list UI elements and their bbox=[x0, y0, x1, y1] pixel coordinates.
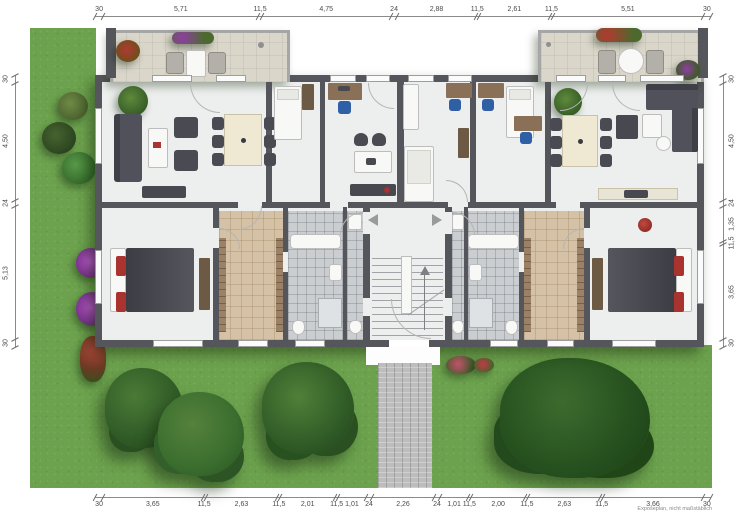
bush-dark bbox=[42, 122, 76, 154]
bed-master-left-pillow-2 bbox=[116, 292, 126, 312]
dim-label-bottom: 1,01 bbox=[447, 501, 461, 508]
wall-mid-horizontal bbox=[102, 202, 697, 208]
dining-chair-r4 bbox=[600, 118, 612, 131]
dim-label-right: 1,35 bbox=[729, 217, 736, 231]
dining-chair-l1 bbox=[212, 117, 224, 130]
sofa-corner-right-top bbox=[646, 84, 698, 110]
window-top-9 bbox=[640, 75, 684, 82]
sofa-left bbox=[114, 114, 142, 182]
dim-label-bottom: 11,5 bbox=[463, 501, 476, 508]
side-table-right bbox=[642, 114, 662, 138]
dining-chair-r5 bbox=[600, 136, 612, 149]
toilet-wc-left bbox=[349, 320, 362, 334]
bed-master-right-pillow-2 bbox=[674, 292, 684, 312]
dim-label-right: 30 bbox=[729, 75, 736, 83]
desk-chair-center bbox=[449, 99, 461, 111]
floor-lamp-right bbox=[656, 136, 671, 151]
dim-label-top: 11,5 bbox=[471, 6, 484, 13]
door-gap-wc-right bbox=[445, 298, 452, 316]
plant-living-left bbox=[118, 86, 148, 116]
dim-label-left: 5,13 bbox=[3, 266, 10, 280]
sink-left bbox=[329, 264, 342, 281]
decor-red-left bbox=[153, 142, 161, 148]
window-bottom-6 bbox=[612, 340, 656, 347]
dim-label-top: 2,61 bbox=[508, 6, 522, 13]
dim-label-top: 5,51 bbox=[621, 6, 635, 13]
terrace-left-chair-1 bbox=[166, 52, 184, 74]
terrace-right-chair-1 bbox=[598, 50, 616, 74]
dim-label-bottom: 11,5 bbox=[198, 501, 211, 508]
wardrobe-hall-right-a bbox=[524, 238, 531, 332]
dining-chair-r3 bbox=[550, 154, 562, 167]
window-right-2 bbox=[697, 250, 704, 304]
plan-note: Exposeplan, nicht maßstäblich bbox=[600, 506, 712, 512]
dim-label-right: 4,50 bbox=[729, 135, 736, 149]
dining-table-left-center bbox=[241, 138, 246, 143]
bed-master-left-pillow-1 bbox=[116, 256, 126, 276]
flower-bush-path-2 bbox=[474, 358, 494, 372]
dim-tick bbox=[709, 13, 714, 21]
monitor-office-left bbox=[338, 86, 350, 91]
dim-label-bottom: 2,00 bbox=[491, 501, 505, 508]
toilet-right bbox=[505, 320, 518, 335]
window-top-2 bbox=[216, 75, 246, 82]
window-top-8 bbox=[598, 75, 626, 82]
window-top-6 bbox=[448, 75, 472, 82]
entrance-door-gap bbox=[389, 340, 429, 347]
dim-label-bottom: 2,01 bbox=[301, 501, 315, 508]
window-top-4 bbox=[366, 75, 390, 82]
door-gap-wc-left bbox=[363, 298, 370, 316]
terrace-right-flower-box bbox=[596, 28, 642, 42]
window-left-2 bbox=[95, 250, 102, 304]
dim-label-left: 30 bbox=[3, 339, 10, 347]
window-right-1 bbox=[697, 108, 704, 164]
wall-hall-master-right bbox=[584, 207, 590, 340]
dim-label-top: 5,71 bbox=[174, 6, 188, 13]
tree-2 bbox=[158, 392, 244, 476]
bed-master-right-pillow-1 bbox=[674, 256, 684, 276]
dim-tick bbox=[11, 345, 19, 350]
dim-line-right bbox=[723, 75, 724, 347]
window-top-5 bbox=[408, 75, 434, 82]
office-chair-black-1 bbox=[354, 133, 368, 146]
terrace-left-red-plant bbox=[116, 40, 140, 62]
dim-tick bbox=[719, 345, 727, 350]
dim-label-bottom: 2,63 bbox=[557, 501, 571, 508]
dim-label-bottom: 11,5 bbox=[520, 501, 533, 508]
wall-bed1-office-left bbox=[320, 82, 325, 207]
sideboard-living-left bbox=[142, 186, 186, 198]
wardrobe-bed1-left bbox=[302, 84, 314, 110]
dining-chair-r1 bbox=[550, 118, 562, 131]
corridor-arrow-left-icon bbox=[368, 214, 378, 226]
dim-label-top: 30 bbox=[95, 6, 103, 13]
bathtub-right bbox=[468, 234, 519, 249]
dim-label-bottom: 24 bbox=[365, 501, 373, 508]
desk-chair-right-2 bbox=[520, 132, 532, 144]
door-gap-hall-right bbox=[556, 202, 580, 208]
sink-right bbox=[469, 264, 482, 281]
window-bottom-5 bbox=[547, 340, 574, 347]
dim-line-left bbox=[15, 75, 16, 347]
armchair-left-1 bbox=[174, 117, 198, 138]
desk-chair-right-1 bbox=[482, 99, 494, 111]
wall-centerbed-bedr1 bbox=[470, 82, 476, 207]
corridor-arrow-right-icon bbox=[432, 214, 442, 226]
desk-right-2 bbox=[514, 116, 542, 131]
window-bottom-4 bbox=[490, 340, 518, 347]
tv-on-sideboard-right bbox=[624, 190, 648, 198]
dim-label-right: 3,65 bbox=[729, 285, 736, 299]
dim-label-right: 24 bbox=[729, 199, 736, 207]
desk-chair-office-left bbox=[338, 101, 351, 114]
terrace-left-spot bbox=[258, 42, 264, 48]
window-bottom-3 bbox=[295, 340, 325, 347]
bed-single-left-pillow bbox=[277, 89, 299, 100]
shelf-center-bedroom bbox=[403, 84, 419, 130]
dim-label-top: 11,5 bbox=[545, 6, 558, 13]
entrance-path bbox=[378, 363, 432, 488]
door-gap-master-right bbox=[584, 228, 590, 248]
dim-label-left: 30 bbox=[3, 75, 10, 83]
terrace-left-flower-box bbox=[172, 32, 214, 44]
dim-label-bottom: 1,01 bbox=[345, 501, 359, 508]
window-bottom-2 bbox=[238, 340, 268, 347]
dim-label-bottom: 30 bbox=[95, 501, 103, 508]
dim-label-bottom: 11,5 bbox=[330, 501, 343, 508]
dim-label-bottom: 3,65 bbox=[146, 501, 160, 508]
wardrobe-hall-left-a bbox=[219, 238, 226, 332]
flower-bush-path-1 bbox=[446, 356, 476, 374]
decor-red-office bbox=[384, 187, 390, 193]
dresser-master-right bbox=[592, 258, 603, 310]
dining-table-right-center bbox=[578, 139, 583, 144]
terrace-left-table bbox=[186, 50, 206, 77]
dim-label-bottom: 2,63 bbox=[235, 501, 249, 508]
terrace-left-chair-2 bbox=[208, 52, 226, 74]
toilet-wc-right bbox=[452, 320, 464, 334]
dim-label-bottom: 11,5 bbox=[272, 501, 285, 508]
terrace-right-chair-2 bbox=[646, 50, 664, 74]
dining-chair-r2 bbox=[550, 136, 562, 149]
door-gap-apartment-right bbox=[445, 212, 452, 234]
dim-label-left: 4,50 bbox=[3, 134, 10, 148]
dim-label-right: 30 bbox=[729, 339, 736, 347]
coffee-table-left bbox=[148, 128, 168, 168]
desk-center-bedroom bbox=[446, 83, 472, 98]
dim-line-bottom bbox=[95, 497, 711, 498]
dim-label-top: 2,88 bbox=[430, 6, 444, 13]
bed-single-right-pillow bbox=[509, 89, 531, 100]
dim-label-top: 24 bbox=[390, 6, 398, 13]
dim-label-bottom: 2,26 bbox=[396, 501, 410, 508]
bed-center-blanket bbox=[407, 150, 431, 184]
window-left-1 bbox=[95, 108, 102, 164]
wardrobe-hall-right-b bbox=[577, 238, 584, 332]
bush-olive bbox=[58, 92, 88, 120]
cabinet-center-bedroom bbox=[458, 128, 469, 158]
dim-label-right: 11,5 bbox=[729, 236, 736, 249]
window-top-3 bbox=[330, 75, 356, 82]
bathtub-left bbox=[290, 234, 341, 249]
dining-chair-r6 bbox=[600, 154, 612, 167]
dining-chair-l3 bbox=[212, 153, 224, 166]
dresser-master-left bbox=[199, 258, 210, 310]
dim-label-top: 4,75 bbox=[319, 6, 333, 13]
terrace-right-spot bbox=[546, 42, 551, 47]
bed-master-right bbox=[608, 248, 676, 312]
tree-4 bbox=[500, 358, 650, 478]
terrace-left-wall-stub bbox=[106, 28, 116, 78]
window-bottom-1 bbox=[153, 340, 203, 347]
wardrobe-hall-left-b bbox=[276, 238, 283, 332]
office-chair-black-2 bbox=[372, 133, 386, 146]
coffee-table-right bbox=[616, 115, 638, 139]
dim-label-bottom: 24 bbox=[433, 501, 441, 508]
decor-red-round-right bbox=[638, 218, 652, 232]
armchair-left-2 bbox=[174, 150, 198, 171]
dim-line-top bbox=[95, 16, 711, 17]
tree-3 bbox=[262, 362, 354, 454]
bed-master-left bbox=[126, 248, 194, 312]
terrace-right-round-table bbox=[618, 48, 644, 74]
shower-left bbox=[318, 298, 342, 328]
stair-up-arrow-icon bbox=[420, 266, 430, 275]
dim-label-top: 11,5 bbox=[253, 6, 266, 13]
dim-label-top: 30 bbox=[703, 6, 711, 13]
window-top-1 bbox=[152, 75, 192, 82]
dining-chair-l6 bbox=[264, 153, 276, 166]
window-top-7 bbox=[556, 75, 586, 82]
bush-green bbox=[62, 152, 96, 184]
sofa-corner-right-side bbox=[672, 108, 698, 152]
shower-right bbox=[469, 298, 493, 328]
dim-label-left: 24 bbox=[3, 199, 10, 207]
dining-chair-l2 bbox=[212, 135, 224, 148]
floor-plan-canvas: 305,7111,54,75242,8811,52,6111,55,513030… bbox=[0, 0, 737, 520]
desk-right-1 bbox=[478, 83, 504, 98]
laptop-office-left bbox=[366, 158, 376, 165]
toilet-left bbox=[292, 320, 305, 335]
